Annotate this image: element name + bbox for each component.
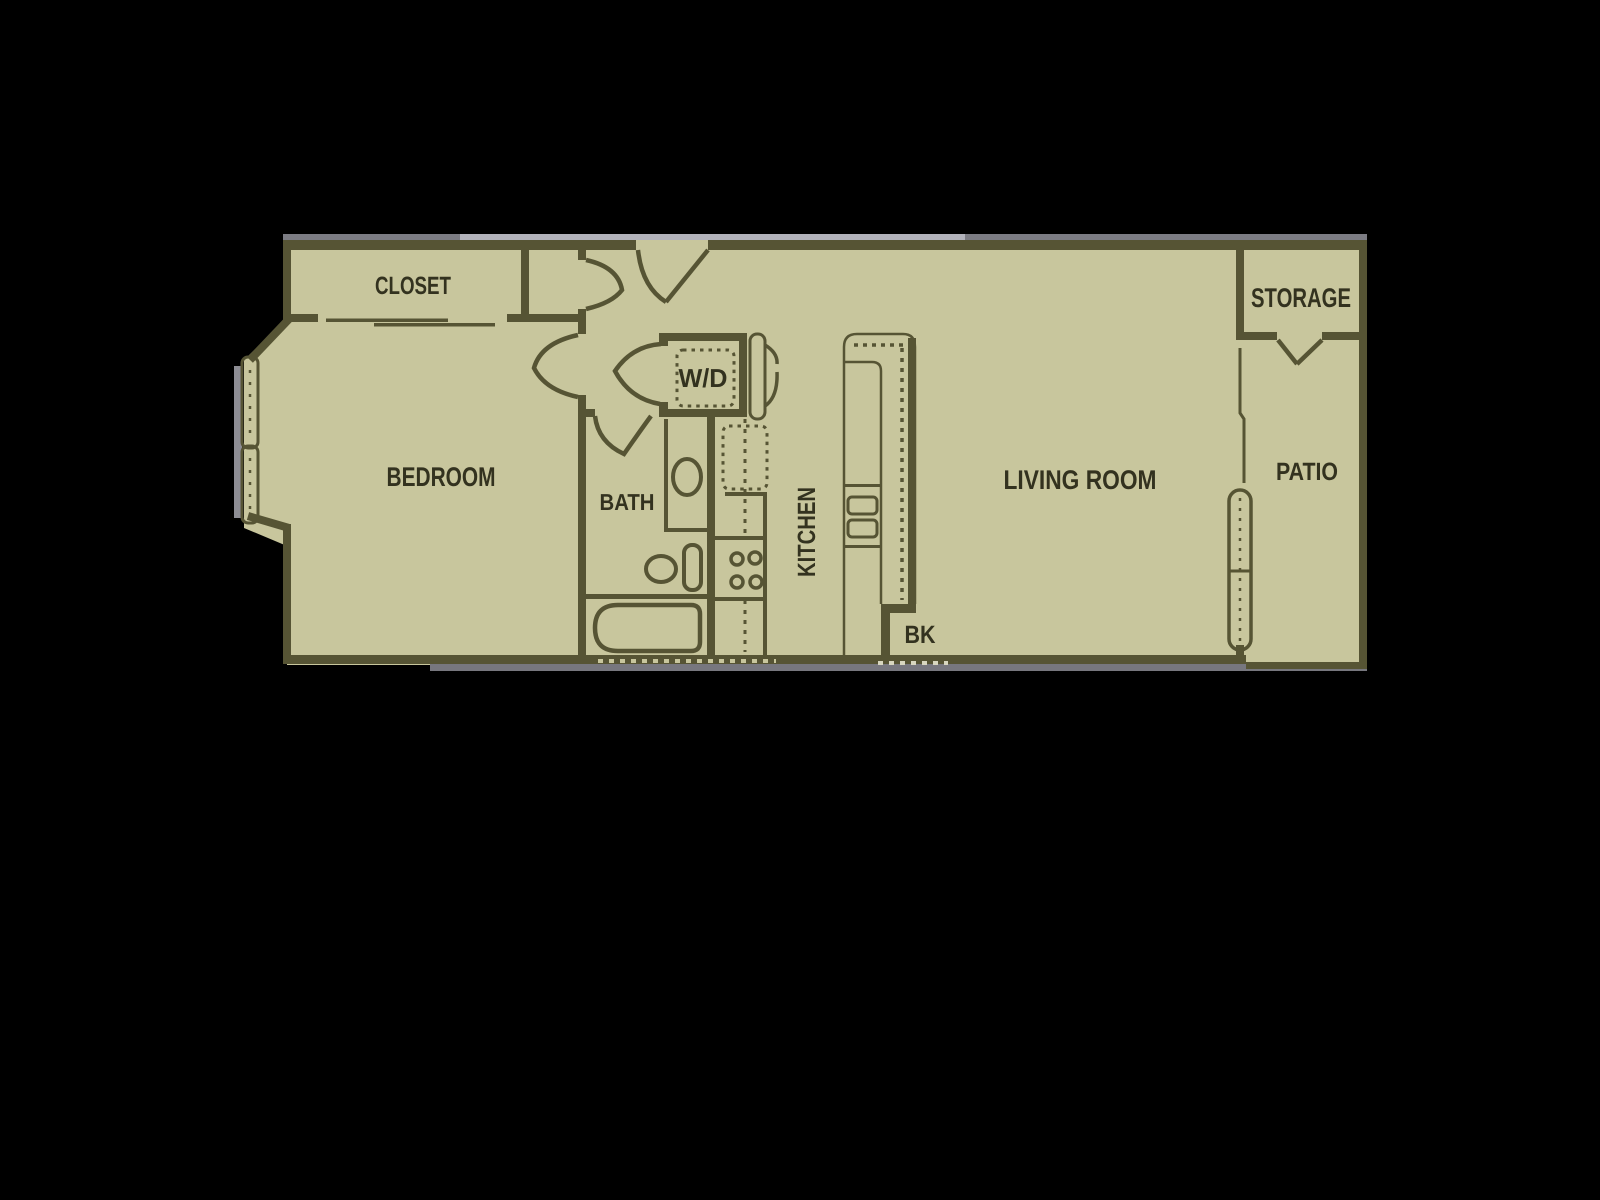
svg-text:W/D: W/D <box>679 363 728 393</box>
svg-text:KITCHEN: KITCHEN <box>793 487 821 577</box>
svg-text:CLOSET: CLOSET <box>375 272 451 300</box>
svg-text:STORAGE: STORAGE <box>1251 283 1351 313</box>
svg-text:PATIO: PATIO <box>1276 458 1338 486</box>
svg-text:BATH: BATH <box>600 489 655 515</box>
svg-text:LIVING ROOM: LIVING ROOM <box>1004 465 1157 495</box>
svg-text:BK: BK <box>905 621 936 649</box>
svg-text:BEDROOM: BEDROOM <box>387 462 496 492</box>
